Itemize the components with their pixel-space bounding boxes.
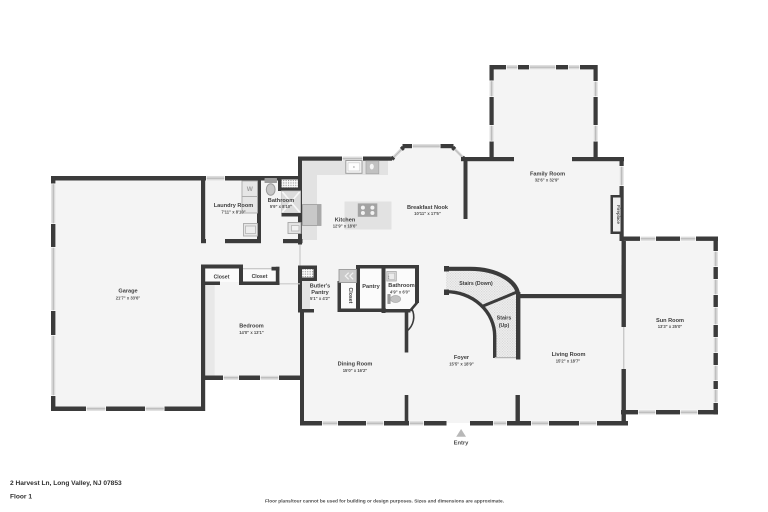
- svg-text:Stairs (Down): Stairs (Down): [459, 281, 493, 287]
- svg-text:Bathroom: Bathroom: [388, 283, 414, 289]
- svg-text:Pantry: Pantry: [362, 284, 380, 290]
- svg-text:Kitchen: Kitchen: [335, 218, 356, 224]
- svg-text:Entry: Entry: [454, 441, 470, 447]
- svg-text:15'0" x 16'2": 15'0" x 16'2": [343, 368, 368, 373]
- svg-text:5'9" x 8'10": 5'9" x 8'10": [270, 204, 292, 209]
- svg-text:2 Harvest Ln, Long Valley, NJ: 2 Harvest Ln, Long Valley, NJ 07853: [10, 480, 122, 487]
- svg-text:Dining Room: Dining Room: [338, 362, 373, 368]
- svg-text:Garage: Garage: [118, 289, 137, 295]
- svg-text:Butler's: Butler's: [310, 284, 331, 290]
- svg-text:Pantry: Pantry: [311, 290, 329, 296]
- svg-text:21'7" x 33'6": 21'7" x 33'6": [116, 296, 141, 301]
- svg-text:Living Room: Living Room: [552, 352, 586, 358]
- svg-text:13'3" x 25'0": 13'3" x 25'0": [658, 324, 683, 329]
- svg-text:Closet: Closet: [214, 275, 230, 281]
- svg-text:5'1" x 4'2": 5'1" x 4'2": [310, 296, 330, 301]
- svg-text:7'11" x 8'10": 7'11" x 8'10": [221, 210, 245, 215]
- svg-text:W: W: [247, 186, 254, 193]
- svg-text:15'5" x 18'9": 15'5" x 18'9": [449, 361, 474, 366]
- svg-text:Stairs: Stairs: [497, 316, 512, 322]
- svg-text:Family Room: Family Room: [530, 172, 565, 178]
- svg-text:Bathroom: Bathroom: [268, 198, 294, 204]
- svg-text:Closet: Closet: [347, 288, 353, 304]
- svg-text:15'2" x 18'7": 15'2" x 18'7": [556, 359, 581, 364]
- svg-text:Closet: Closet: [252, 274, 268, 280]
- svg-text:Floor plans/tour cannot be use: Floor plans/tour cannot be used for buil…: [265, 499, 504, 505]
- svg-text:Laundry Room: Laundry Room: [214, 203, 253, 209]
- svg-text:Floor 1: Floor 1: [10, 494, 32, 501]
- svg-text:Fireplace: Fireplace: [616, 205, 621, 224]
- svg-text:32'6" x 32'9": 32'6" x 32'9": [535, 178, 560, 183]
- svg-text:10'11" x 17'5": 10'11" x 17'5": [414, 211, 441, 216]
- svg-text:4'9" x 6'0": 4'9" x 6'0": [390, 290, 410, 295]
- svg-text:14'0" x 13'1": 14'0" x 13'1": [239, 330, 264, 335]
- svg-text:12'9" x 18'6": 12'9" x 18'6": [333, 224, 358, 229]
- svg-text:Sun Room: Sun Room: [656, 318, 684, 324]
- svg-text:(Up): (Up): [499, 323, 510, 329]
- svg-text:Bedroom: Bedroom: [239, 324, 264, 330]
- svg-text:Foyer: Foyer: [454, 355, 470, 361]
